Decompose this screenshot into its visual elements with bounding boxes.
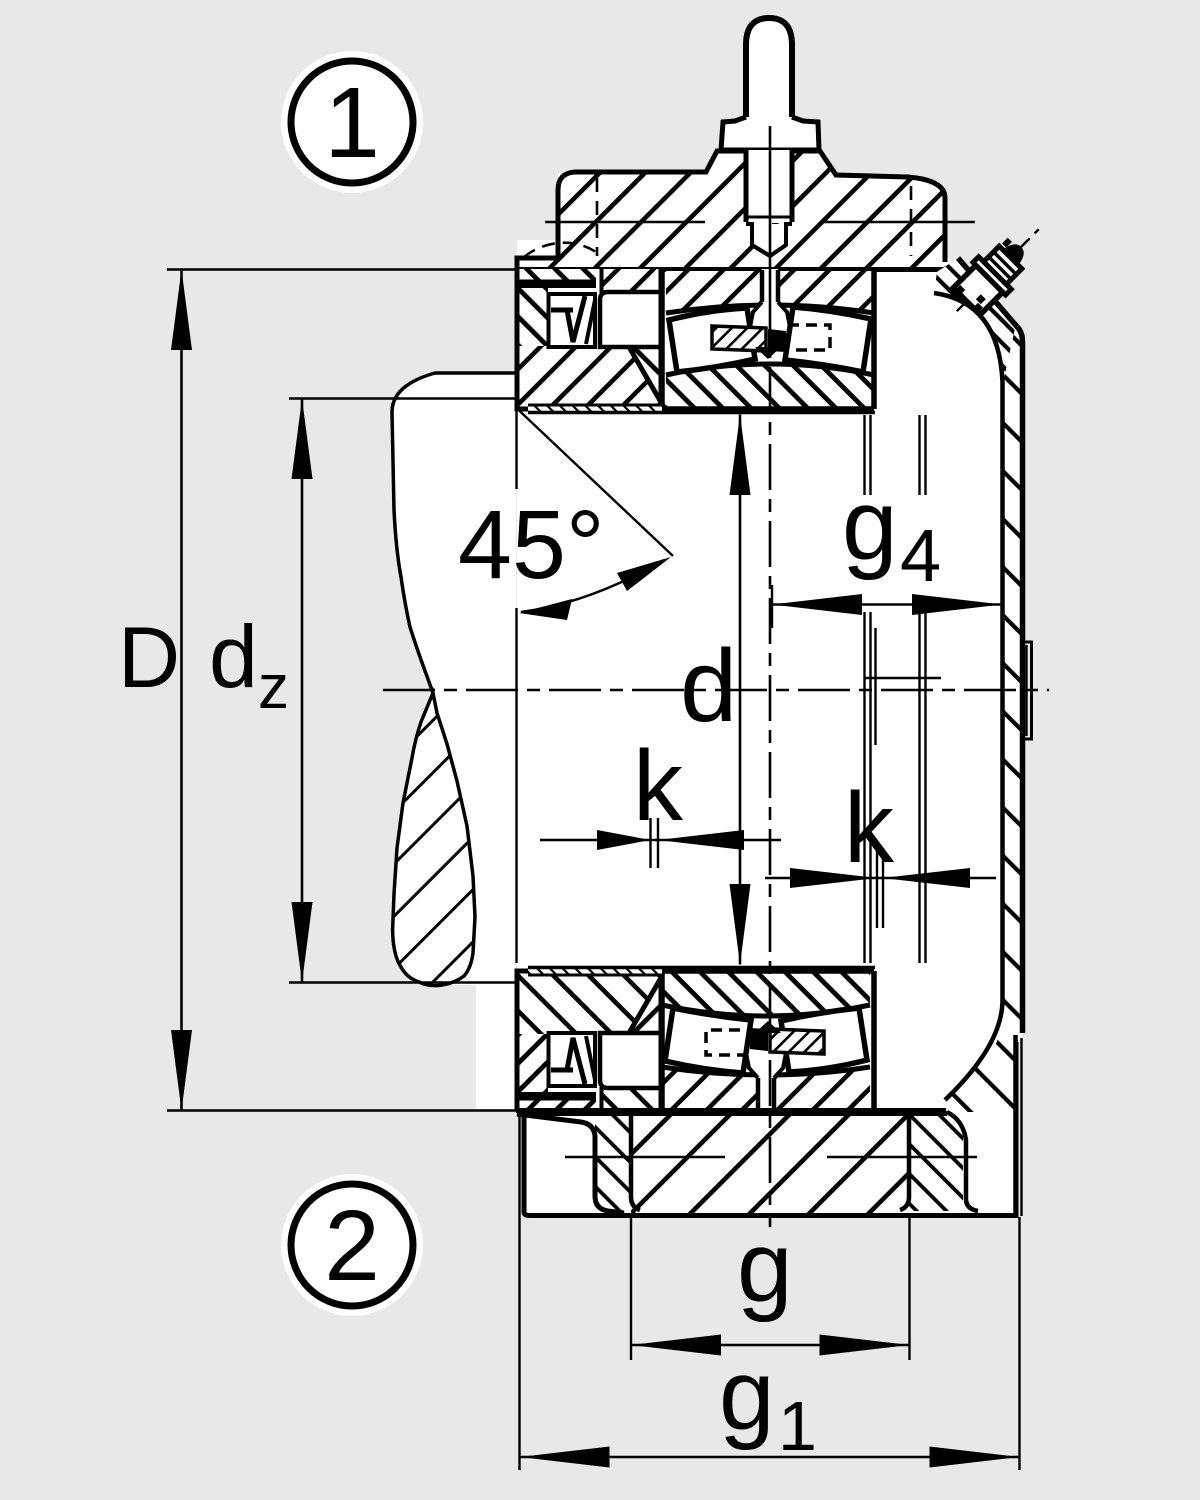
svg-text:2: 2 — [324, 1190, 380, 1302]
svg-text:D: D — [118, 610, 180, 706]
svg-text:1: 1 — [778, 1387, 817, 1465]
svg-text:4: 4 — [900, 514, 941, 597]
svg-text:g: g — [842, 469, 898, 581]
svg-text:d: d — [680, 628, 737, 743]
svg-text:1: 1 — [324, 67, 380, 179]
svg-text:g: g — [737, 1211, 793, 1323]
svg-text:45°: 45° — [458, 490, 605, 599]
svg-text:k: k — [633, 730, 684, 842]
svg-text:k: k — [844, 772, 895, 884]
svg-text:z: z — [258, 653, 289, 722]
svg-text:g: g — [719, 1339, 775, 1451]
svg-text:d: d — [209, 607, 258, 706]
